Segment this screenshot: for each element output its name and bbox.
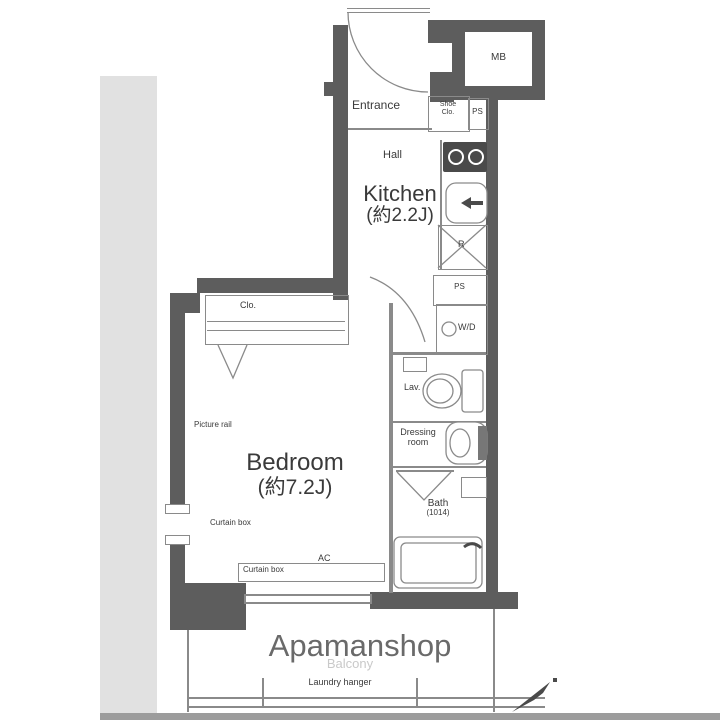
dressing-line2: room (408, 437, 429, 447)
bedroom-name: Bedroom (228, 450, 362, 476)
toilet-icon (423, 370, 483, 412)
label-refrigerator: R (458, 240, 465, 250)
bedroom-size: (約7.2J) (228, 476, 362, 499)
label-bath: Bath (1014) (408, 498, 468, 518)
label-hall: Hall (383, 149, 402, 161)
label-ac: AC (318, 554, 331, 564)
bath-size: (1014) (408, 509, 468, 518)
label-closet: Clo. (240, 301, 256, 311)
label-washer-dryer: W/D (458, 323, 476, 333)
washer-dryer-icon (442, 322, 456, 336)
label-lavatory: Lav. (404, 383, 420, 393)
kitchen-size: (約2.2J) (345, 206, 455, 227)
label-picture-rail: Picture rail (194, 421, 232, 430)
kitchen-name: Kitchen (345, 182, 455, 206)
label-laundry-hanger: Laundry hanger (270, 678, 410, 688)
closet-folding-door-icon (218, 345, 247, 378)
entrance-door-arc (348, 12, 428, 92)
shoe-closet-line2: Clo. (442, 109, 454, 116)
stove-icon (443, 142, 487, 172)
dressing-line1: Dressing (400, 427, 436, 437)
bathtub-icon (394, 537, 482, 588)
vanity-sink-icon (446, 422, 487, 464)
label-entrance: Entrance (352, 99, 400, 112)
label-ps-top: PS (468, 108, 487, 117)
label-bedroom: Bedroom (約7.2J) (228, 450, 362, 499)
label-balcony: Balcony (280, 657, 420, 671)
label-shoe-closet: Shoe Clo. (428, 101, 468, 116)
label-curtain-box-left: Curtain box (210, 519, 251, 528)
shoe-closet-line1: Shoe (440, 101, 456, 108)
compass-north-icon (512, 678, 557, 712)
label-dressing-room: Dressing room (392, 428, 444, 448)
bath-folding-door-icon (397, 472, 451, 500)
bedroom-door-arc (370, 277, 425, 342)
label-mb: MB (465, 52, 532, 63)
floorplan-image: MB Entrance Shoe Clo. PS Hall Kitchen (約… (0, 0, 720, 720)
label-ps-mid: PS (433, 283, 486, 292)
label-curtain-box-bottom: Curtain box (243, 566, 284, 575)
label-kitchen: Kitchen (約2.2J) (345, 182, 455, 227)
